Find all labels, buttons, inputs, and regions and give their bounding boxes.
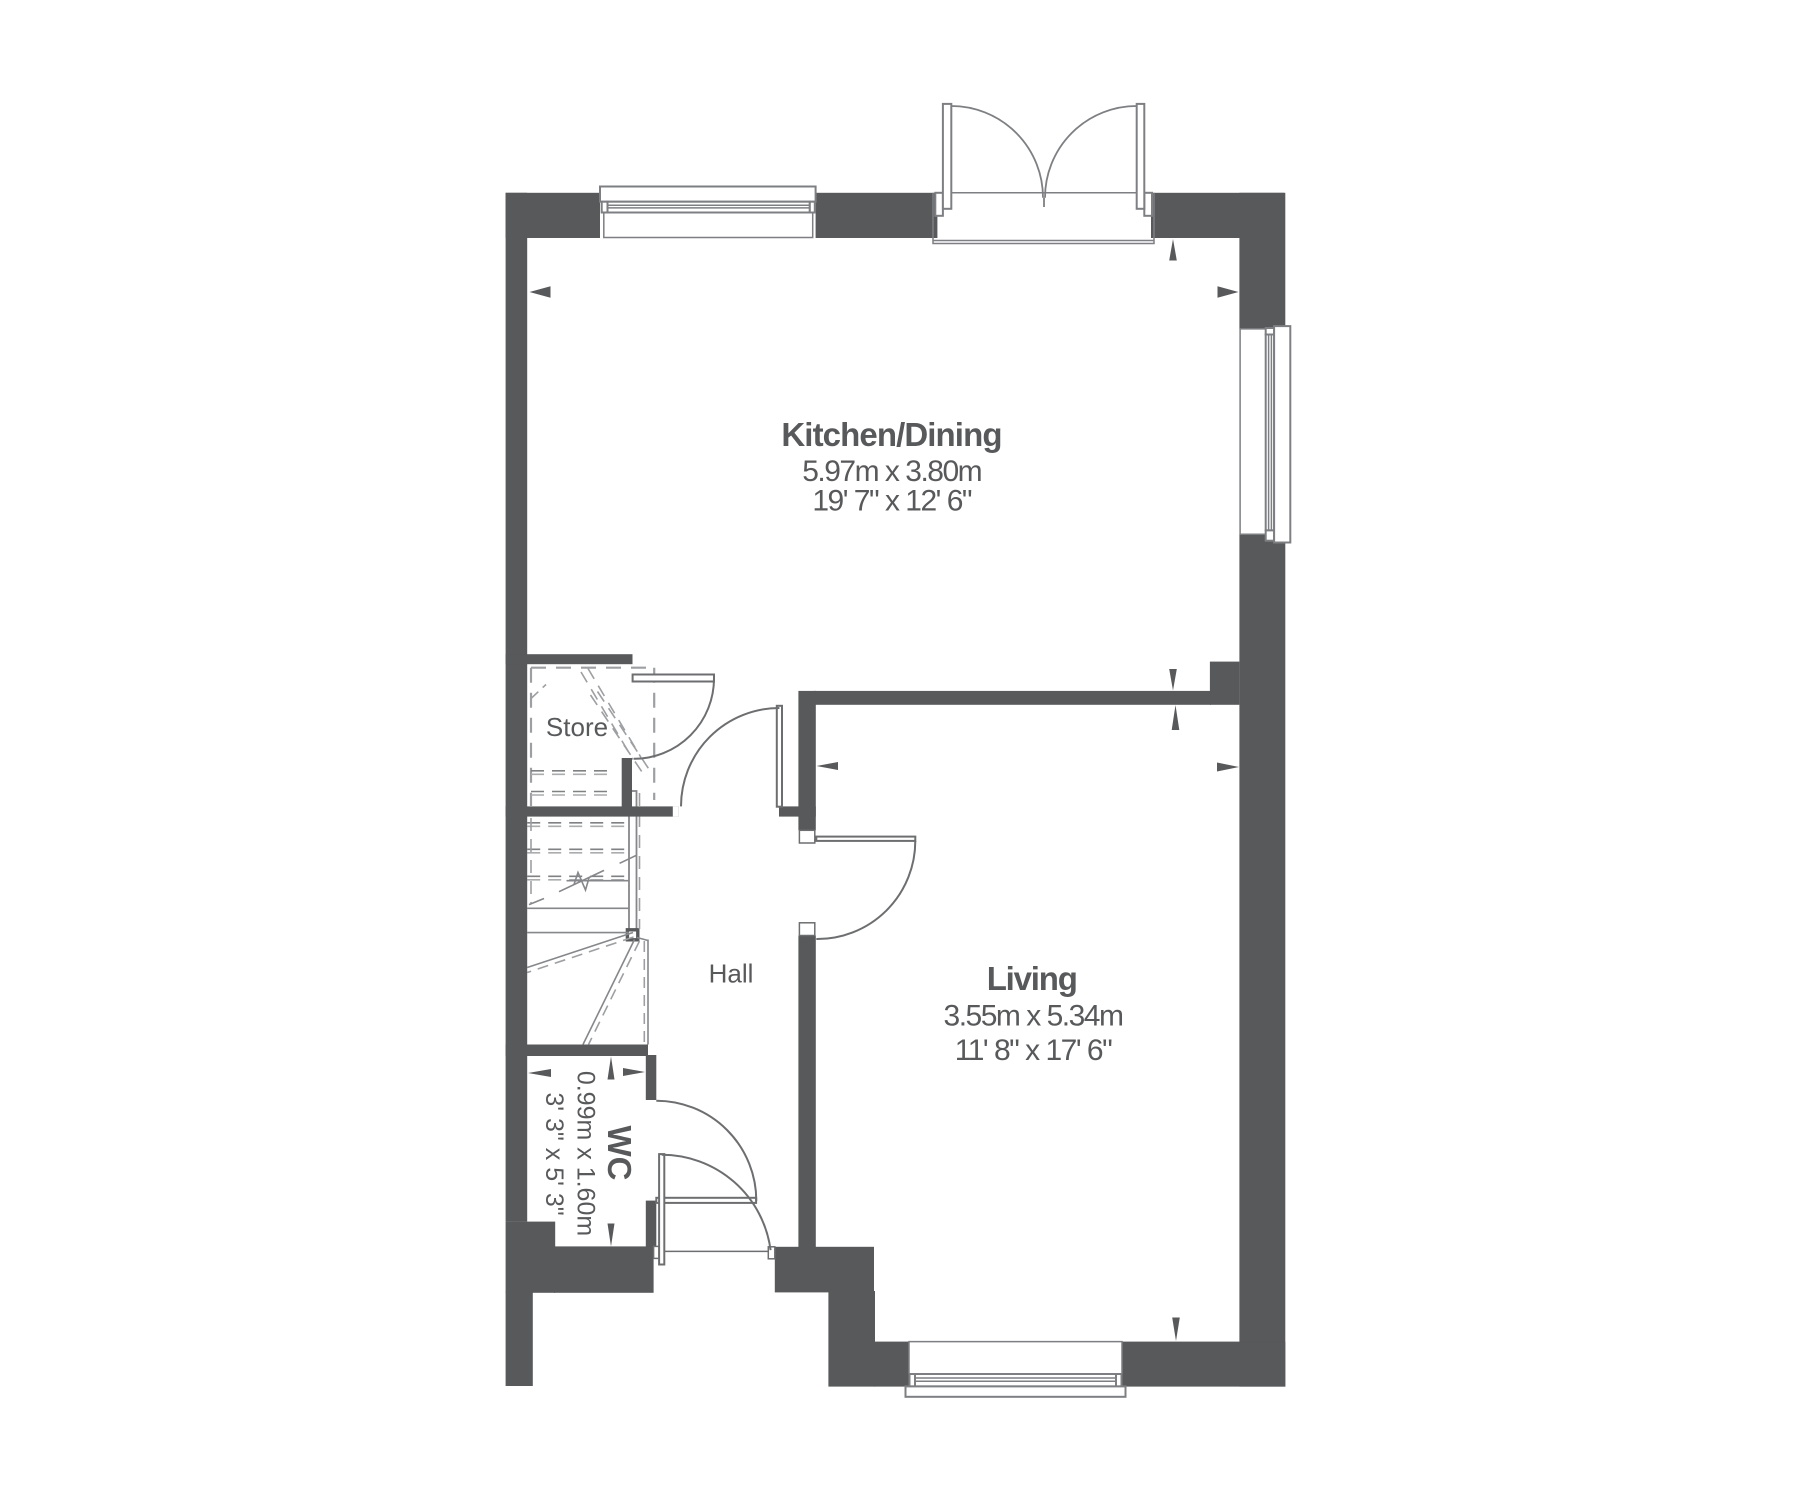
- svg-text:0.99m x 1.60m: 0.99m x 1.60m: [572, 1071, 600, 1236]
- svg-text:5.97m x 3.80m: 5.97m x 3.80m: [802, 455, 981, 488]
- svg-text:WC: WC: [601, 1126, 638, 1181]
- svg-text:Hall: Hall: [709, 958, 754, 988]
- svg-text:3' 3" x 5' 3": 3' 3" x 5' 3": [540, 1092, 568, 1215]
- svg-text:11' 8" x 17' 6": 11' 8" x 17' 6": [955, 1034, 1112, 1067]
- svg-text:3.55m x 5.34m: 3.55m x 5.34m: [944, 1000, 1123, 1033]
- svg-text:Kitchen/Dining: Kitchen/Dining: [781, 416, 1001, 453]
- svg-text:19' 7" x 12' 6": 19' 7" x 12' 6": [812, 485, 972, 518]
- svg-text:Living: Living: [987, 960, 1077, 997]
- svg-text:Store: Store: [546, 712, 608, 742]
